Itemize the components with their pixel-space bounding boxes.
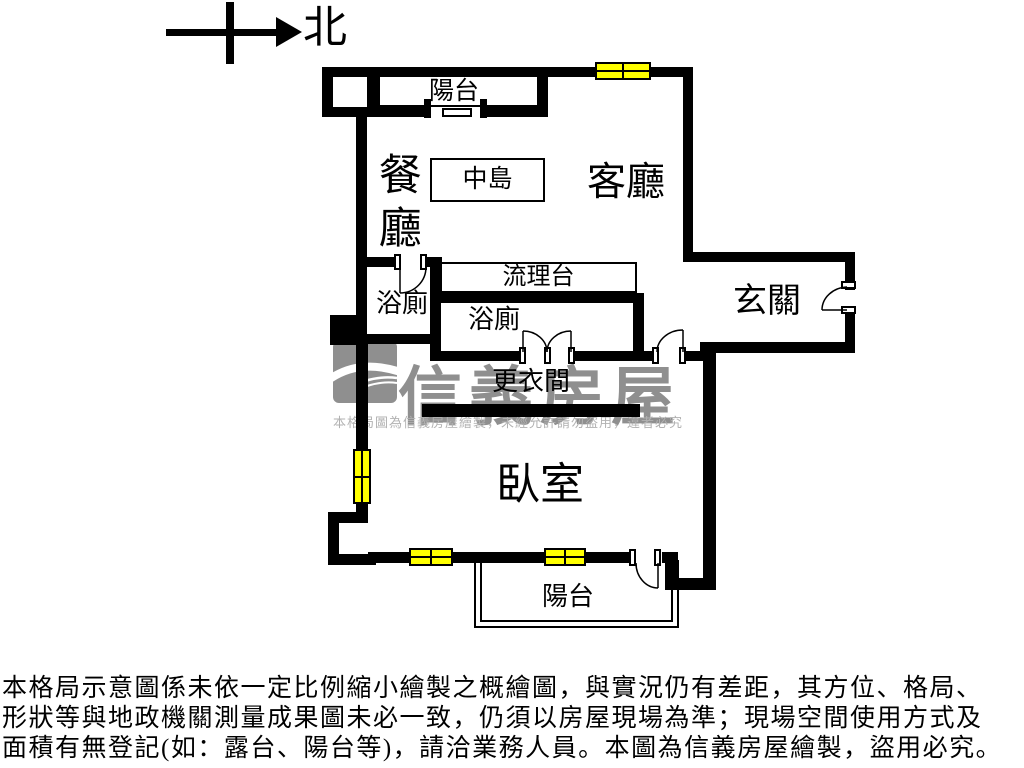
- room-label-dressing: 更衣間: [492, 368, 570, 397]
- door-jamb: [544, 347, 551, 364]
- room-label-entry: 玄關: [733, 283, 801, 320]
- disclaimer-line: 面積有無登記(如：露台、陽台等)，請洽業務人員。本圖為信義房屋繪製，盜用必究。: [2, 734, 1022, 764]
- wall: [683, 252, 855, 262]
- room-label-dining: 餐廳: [372, 152, 419, 258]
- wall: [703, 342, 716, 580]
- room-label-balcony-bottom: 陽台: [542, 583, 594, 612]
- sliding-door-panel: [442, 108, 472, 117]
- wall: [683, 67, 693, 262]
- wall: [662, 552, 678, 563]
- window: [409, 548, 453, 566]
- wall: [686, 351, 708, 361]
- room-label-bath2: 浴廁: [468, 306, 520, 335]
- wall: [356, 257, 398, 267]
- door-jamb: [654, 549, 661, 566]
- door-jamb: [629, 549, 636, 566]
- wall: [700, 342, 855, 353]
- window: [595, 62, 651, 80]
- room-label-bedroom: 臥室: [496, 461, 584, 509]
- door-jamb: [420, 254, 427, 270]
- wall: [575, 351, 655, 361]
- wall: [328, 554, 376, 565]
- door-jamb: [568, 347, 575, 364]
- wall: [330, 334, 440, 344]
- door-jamb: [841, 306, 856, 314]
- island-label: 中島: [462, 166, 512, 194]
- kitchen-island-box: 中島: [430, 158, 545, 202]
- wall: [430, 351, 520, 361]
- room-label-bath1: 浴廁: [376, 290, 428, 319]
- room-label-balcony-top: 陽台: [429, 78, 479, 106]
- door-jamb: [480, 99, 487, 118]
- door-jamb: [679, 347, 686, 364]
- counter-box: 流理台: [440, 262, 637, 293]
- window: [544, 548, 586, 566]
- room-label-living: 客廳: [587, 162, 665, 205]
- wall: [356, 344, 368, 452]
- disclaimer-line: 本格局示意圖係未依一定比例縮小繪製之概繪圖，與實況仍有差距，其方位、格局、: [2, 674, 1022, 704]
- counter-label: 流理台: [503, 264, 575, 290]
- wall: [430, 293, 644, 303]
- north-label: 北: [303, 4, 347, 52]
- wall: [367, 105, 427, 117]
- door-jamb: [841, 281, 856, 289]
- wall: [537, 75, 548, 117]
- door-jamb: [519, 347, 526, 364]
- disclaimer-text: 本格局示意圖係未依一定比例縮小繪製之概繪圖，與實況仍有差距，其方位、格局、 形狀…: [2, 674, 1022, 764]
- disclaimer-line: 形狀等與地政機關測量成果圖未必一致，仍須以房屋現場為準；現場空間使用方式及: [2, 704, 1022, 734]
- wall: [368, 552, 634, 563]
- closet-bar: [422, 404, 640, 417]
- door-jamb: [652, 347, 659, 364]
- wall: [430, 257, 441, 361]
- floor-plan: 信義房屋 本格局圖為信義房屋繪製，未經允許請勿盜用，違者必究 中島 流理台: [0, 0, 1024, 768]
- window: [353, 449, 371, 504]
- wall: [356, 107, 367, 345]
